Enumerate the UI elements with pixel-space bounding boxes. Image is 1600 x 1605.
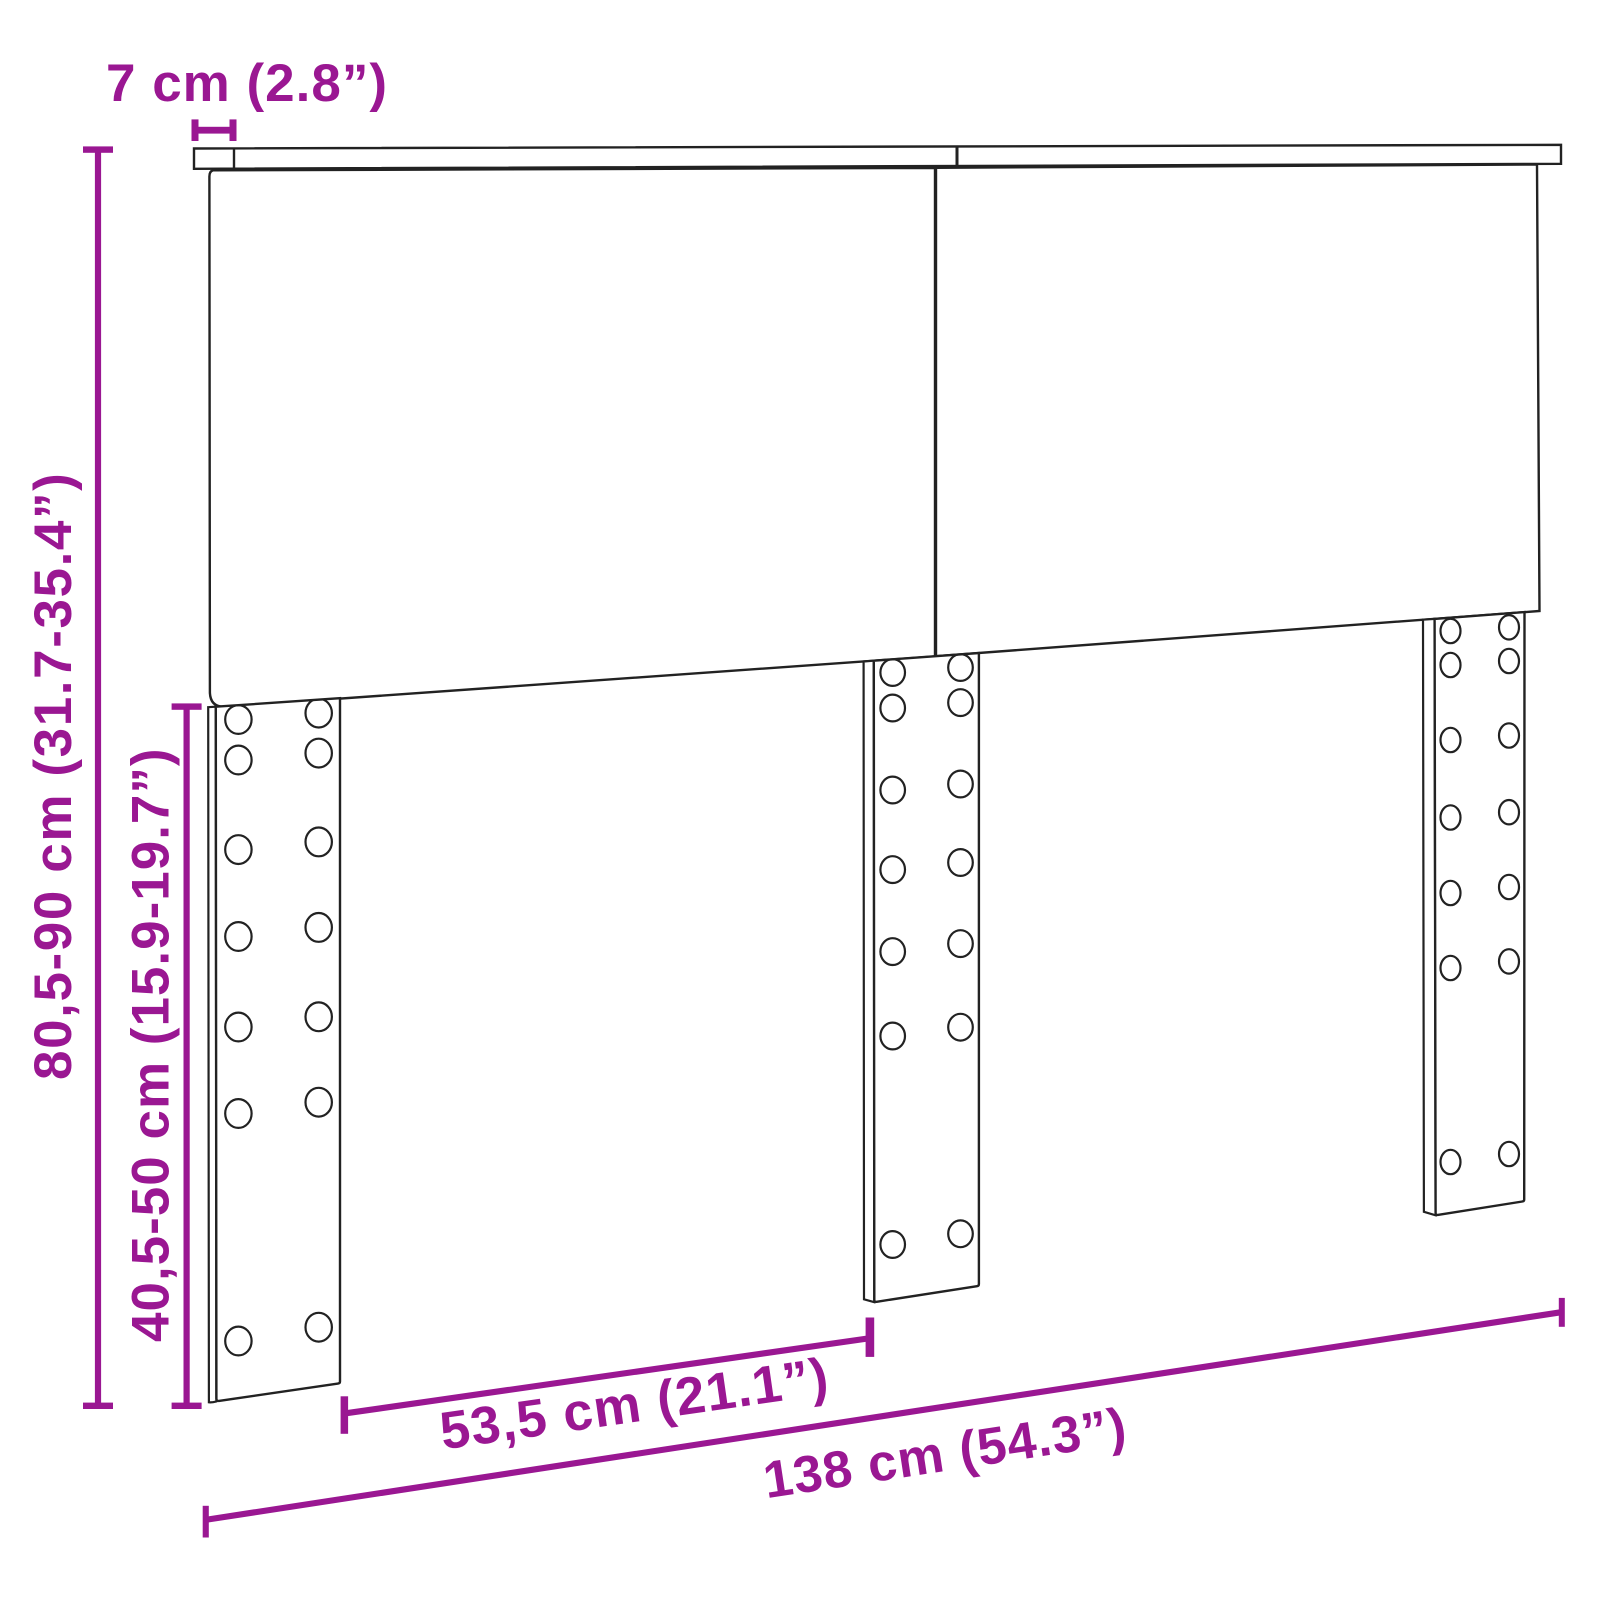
svg-text:80,5-90 cm (31.7-35.4”): 80,5-90 cm (31.7-35.4”) — [24, 472, 83, 1080]
svg-text:7 cm (2.8”): 7 cm (2.8”) — [106, 54, 388, 113]
svg-text:40,5-50 cm (15.9-19.7”): 40,5-50 cm (15.9-19.7”) — [122, 747, 181, 1342]
